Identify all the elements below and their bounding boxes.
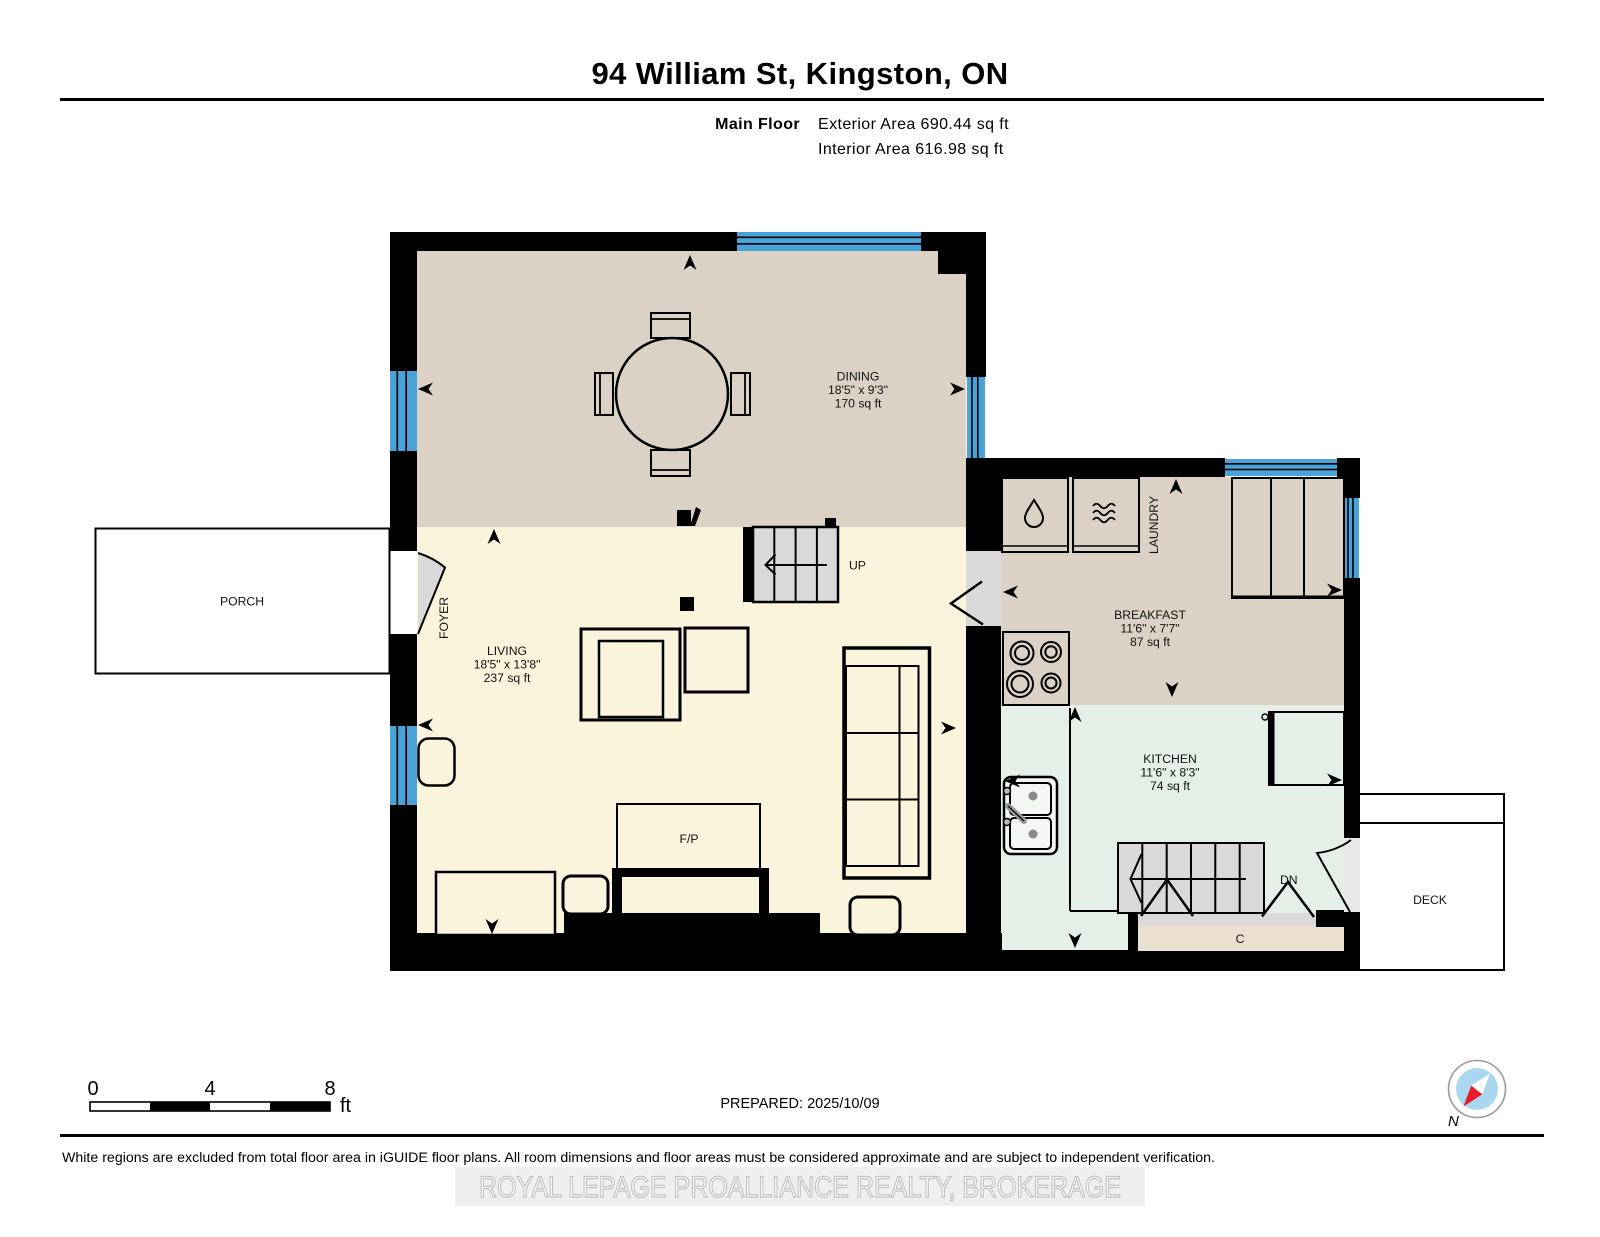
svg-text:237 sq ft: 237 sq ft [484, 671, 531, 685]
svg-text:KITCHEN: KITCHEN [1143, 752, 1197, 766]
svg-text:N: N [1448, 1113, 1459, 1130]
svg-text:74 sq ft: 74 sq ft [1150, 779, 1191, 793]
svg-text:18'5" x 13'8": 18'5" x 13'8" [474, 658, 541, 672]
svg-text:F/P: F/P [680, 832, 699, 846]
svg-text:PREPARED: 2025/10/09: PREPARED: 2025/10/09 [720, 1096, 879, 1112]
svg-text:8: 8 [324, 1078, 335, 1100]
svg-text:87 sq ft: 87 sq ft [1130, 635, 1171, 649]
svg-text:Exterior Area 690.44 sq ft: Exterior Area 690.44 sq ft [818, 116, 1009, 133]
svg-text:11'6" x 8'3": 11'6" x 8'3" [1140, 766, 1199, 780]
svg-text:UP: UP [849, 559, 866, 573]
svg-text:4: 4 [204, 1078, 215, 1100]
svg-text:DECK: DECK [1413, 893, 1447, 907]
svg-text:DINING: DINING [837, 370, 880, 384]
svg-text:Main Floor: Main Floor [715, 116, 800, 133]
svg-text:LAUNDRY: LAUNDRY [1147, 496, 1161, 554]
svg-text:ft: ft [340, 1095, 352, 1117]
svg-text:11'6" x 7'7": 11'6" x 7'7" [1120, 622, 1179, 636]
svg-text:BREAKFAST: BREAKFAST [1114, 608, 1186, 622]
svg-text:White regions are excluded fro: White regions are excluded from total fl… [62, 1150, 1215, 1166]
svg-text:LIVING: LIVING [487, 644, 527, 658]
svg-text:18'5" x 9'3": 18'5" x 9'3" [828, 383, 888, 397]
svg-text:C: C [1236, 932, 1245, 946]
svg-text:94 William St, Kingston, ON: 94 William St, Kingston, ON [591, 56, 1008, 91]
svg-text:170 sq ft: 170 sq ft [835, 397, 882, 411]
svg-text:FOYER: FOYER [437, 597, 451, 639]
svg-text:PORCH: PORCH [220, 595, 264, 609]
svg-text:Interior Area 616.98 sq ft: Interior Area 616.98 sq ft [818, 141, 1004, 158]
svg-text:0: 0 [87, 1078, 98, 1100]
svg-text:DN: DN [1280, 873, 1298, 887]
svg-text:ROYAL LEPAGE PROALLIANCE REALT: ROYAL LEPAGE PROALLIANCE REALTY, BROKERA… [479, 1171, 1121, 1204]
